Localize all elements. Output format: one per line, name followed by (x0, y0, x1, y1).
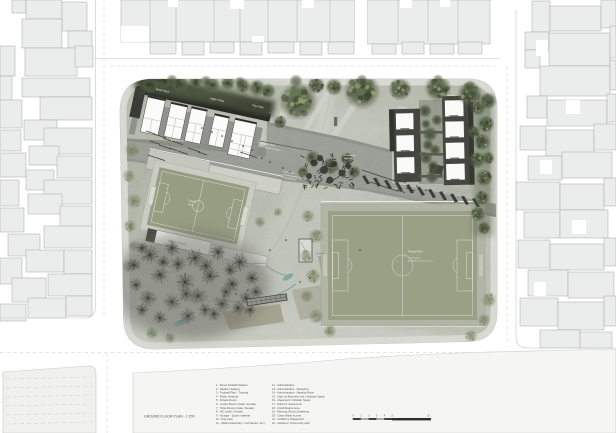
svg-text:12 - Administration: 12 - Administration (272, 383, 295, 387)
svg-text:9 - Storage - Sports material: 9 - Storage - Sports material (216, 413, 250, 417)
svg-text:7 - Toilet Rooms (male / femal: 7 - Toilet Rooms (male / female) (216, 406, 254, 410)
svg-text:3 - Football Pitch - Training: 3 - Football Pitch - Training (216, 391, 249, 395)
svg-text:15 - Start Up Business Unit /: 15 - Start Up Business Unit / Modular Sp… (272, 394, 325, 398)
svg-text:21 - Children's Playground: 21 - Children's Playground (272, 417, 304, 421)
svg-text:18 - Amphitheatre Area: 18 - Amphitheatre Area (272, 406, 300, 410)
svg-text:22 - Gardens / Community path: 22 - Gardens / Community path (272, 421, 310, 425)
svg-text:Regulation 40x20m grass: Regulation 40x20m grass (408, 260, 434, 263)
svg-text:Veranda: Veranda (344, 157, 353, 160)
svg-text:2 - Stadium Seating: 2 - Stadium Seating (216, 387, 240, 391)
svg-text:16 - Classroom / Modular Space: 16 - Classroom / Modular Space (272, 398, 311, 402)
svg-text:Clean Water Access: Clean Water Access (246, 262, 267, 265)
svg-text:Community: Community (344, 154, 356, 157)
svg-text:Housing: Housing (398, 107, 407, 109)
svg-text:Training Area: Training Area (408, 257, 422, 260)
svg-text:1 - Street Football Stadium: 1 - Street Football Stadium (216, 383, 249, 387)
svg-text:4 - Public Veranda: 4 - Public Veranda (216, 394, 238, 398)
svg-text:Gardens: Gardens (316, 252, 325, 255)
svg-text:20 - Clean Water Access: 20 - Clean Water Access (272, 413, 302, 417)
svg-text:14 - Administration - Meeting: 14 - Administration - Meeting Room (272, 391, 315, 395)
svg-text:10 - Day Care: 10 - Day Care (216, 417, 233, 421)
svg-text:13 - Administration - Receptio: 13 - Administration - Reception (272, 387, 309, 391)
svg-text:Street Football Stadium: Street Football Stadium (399, 198, 422, 201)
svg-text:8 - WC (child / female): 8 - WC (child / female) (216, 410, 243, 414)
svg-text:Housing: Housing (447, 95, 456, 97)
svg-text:11 - (Multi-Use/Library / Loft: 11 - (Multi-Use/Library / Loft House / e… (216, 421, 265, 425)
svg-text:GROUND FLOOR PLAN - 1:200: GROUND FLOOR PLAN - 1:200 (144, 415, 195, 419)
svg-text:5 - Fitness Room: 5 - Fitness Room (216, 398, 237, 402)
svg-text:Football Pitch: Football Pitch (408, 251, 423, 254)
svg-text:6 - Locker Rooms (male / femal: 6 - Locker Rooms (male / female) (216, 402, 256, 406)
svg-text:19 - Meeting (Porch) Gathering: 19 - Meeting (Porch) Gathering (272, 410, 310, 414)
svg-text:17 - Patio for classrooms: 17 - Patio for classrooms (272, 402, 302, 406)
